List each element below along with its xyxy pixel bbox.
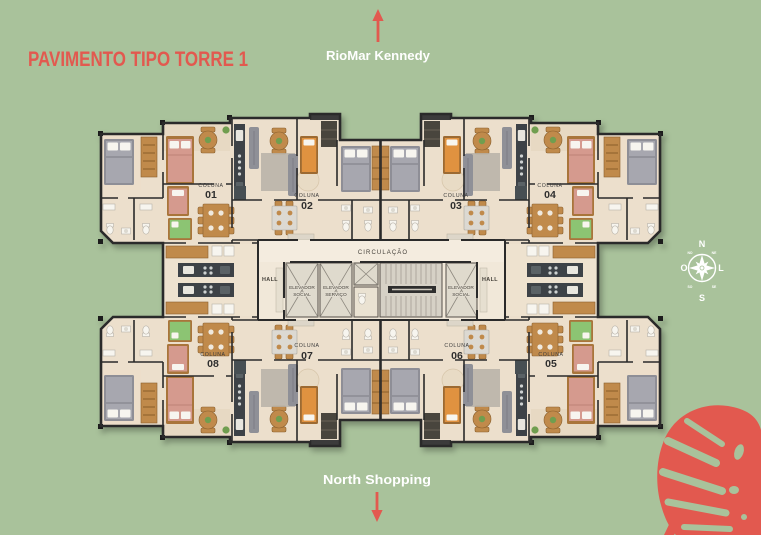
compass-se: SE [712,285,717,289]
unit-03-coluna: COLUNA [443,193,468,199]
direction-bottom-label: North Shopping [323,473,431,487]
compass-sw: SO [688,285,693,289]
direction-top: RioMar Kennedy [326,9,430,63]
direction-top-label: RioMar Kennedy [326,49,430,63]
floor-plan-page: CIRCULAÇÃO HALL HALL ELEVADOR SOCIAL ELE… [0,0,761,535]
unit-08-number: 08 [207,358,219,370]
unit-02-coluna: COLUNA [294,193,319,199]
unit-03-number: 03 [450,200,462,212]
compass-nw: NO [687,251,692,255]
building-floor-plan [98,114,663,446]
monstera-leaf-icon [657,405,761,535]
unit-06-number: 06 [451,350,463,362]
unit-05-number: 05 [545,358,557,370]
compass-rose-icon: N S L O NO NE SO SE [680,239,724,303]
elevator-service-label2: SERVIÇO [325,292,347,298]
compass-n: N [699,239,706,249]
compass-ne: NE [712,251,717,255]
elevator-service-label: ELEVADOR [323,285,349,291]
unit-04-number: 04 [544,189,556,201]
elevator-social-left-label2: SOCIAL [293,292,311,298]
elevator-social-left-label: ELEVADOR [289,285,315,291]
unit-01-number: 01 [205,189,217,201]
unit-02-number: 02 [301,200,313,212]
hall-left-label: HALL [262,277,278,283]
elevator-social-right-label2: SOCIAL [452,292,470,298]
arrow-down-head-icon [371,510,382,522]
compass-e: L [718,263,724,273]
page-title: PAVIMENTO TIPO TORRE 1 [28,48,248,71]
unit-07-coluna: COLUNA [294,343,319,349]
circulation-label: CIRCULAÇÃO [358,249,408,256]
compass-w: O [680,263,687,273]
arrow-up-head-icon [372,9,383,21]
unit-07-number: 07 [301,350,313,362]
unit-06-coluna: COLUNA [444,343,469,349]
direction-bottom: North Shopping [323,473,431,522]
elevator-social-right-label: ELEVADOR [448,285,474,291]
hall-right-label: HALL [482,277,498,283]
compass-s: S [699,293,705,303]
floor-plan-canvas: CIRCULAÇÃO HALL HALL ELEVADOR SOCIAL ELE… [0,0,761,535]
